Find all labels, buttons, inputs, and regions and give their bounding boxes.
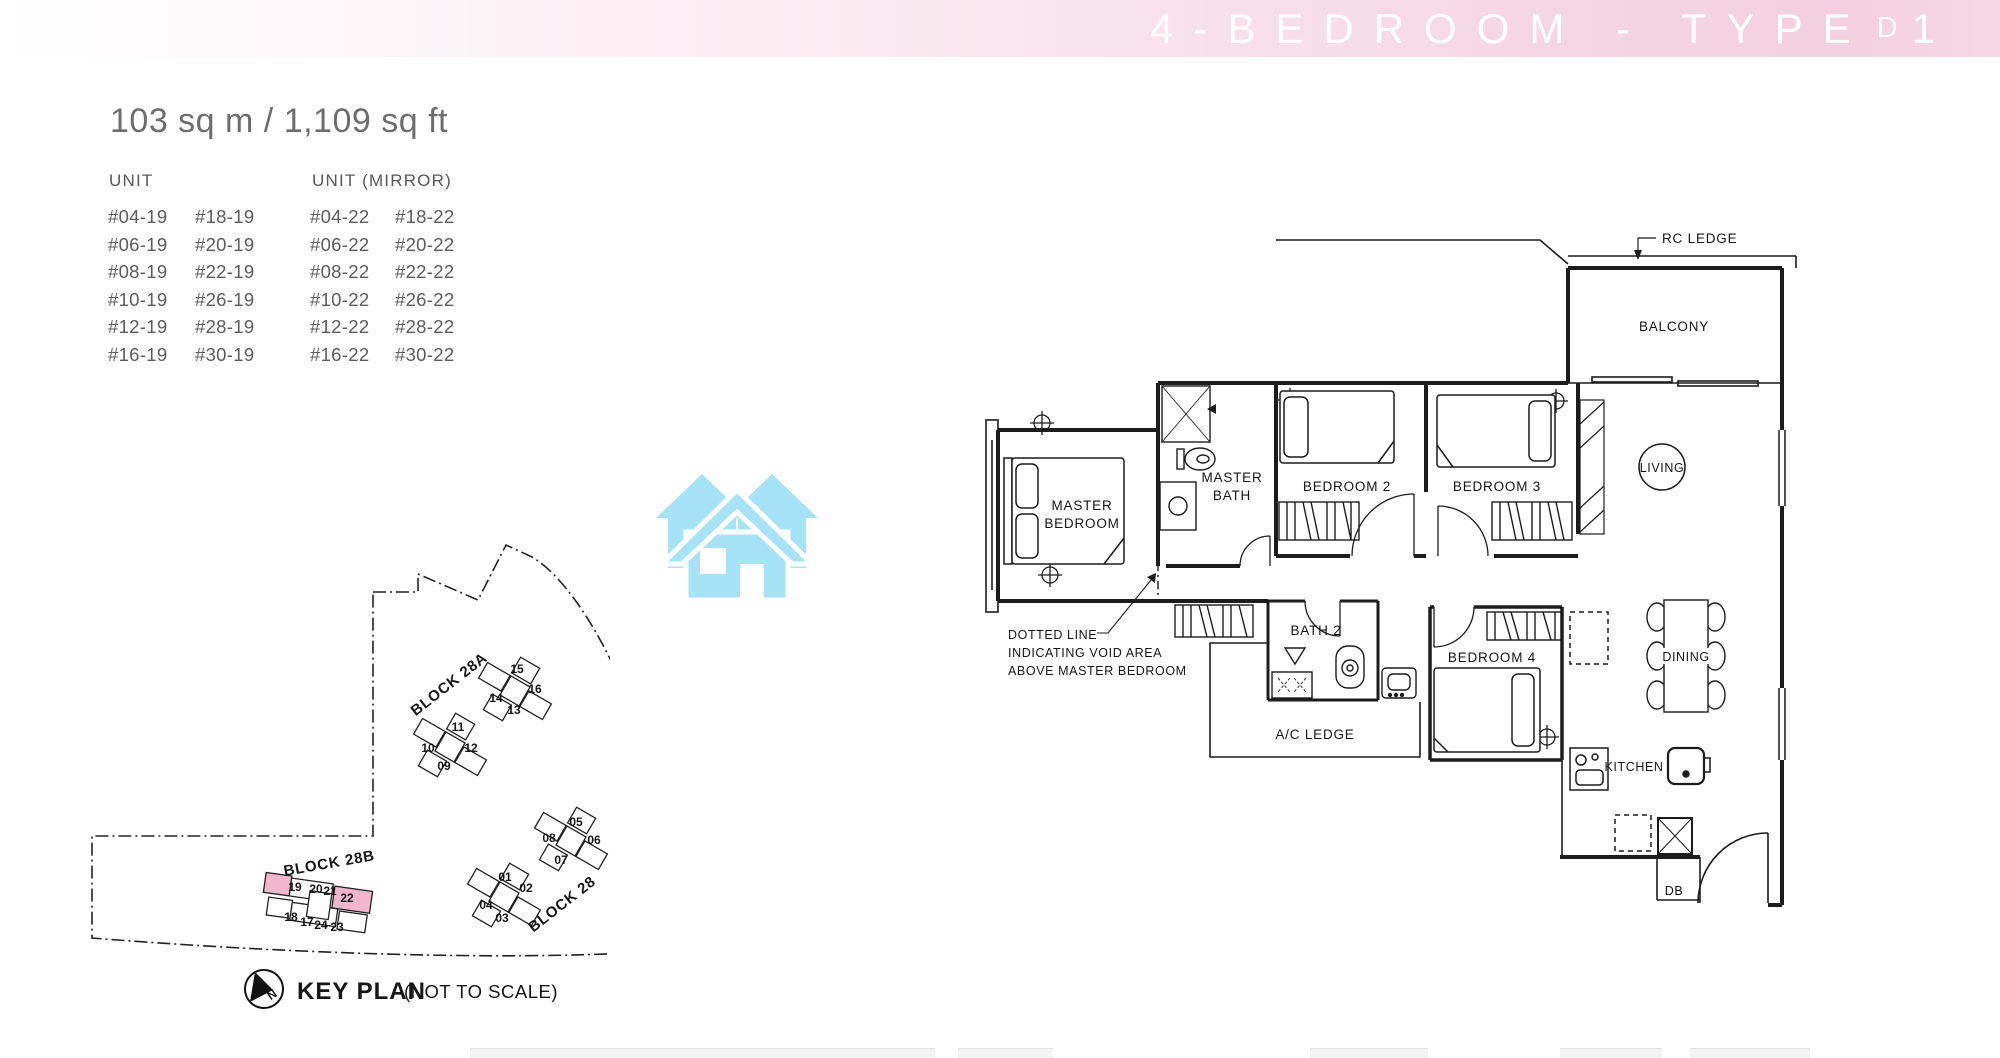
- keyplan-unit: 06: [587, 833, 601, 847]
- keyplan-unit-highlighted: 19: [288, 880, 302, 894]
- unit-cell: #18-19: [195, 206, 310, 234]
- keyplan-unit: 11: [452, 720, 465, 734]
- keyplan-unit: 16: [528, 682, 542, 696]
- master-bath-label-1: MASTER: [1201, 470, 1262, 485]
- block-28-label: BLOCK 28: [525, 873, 599, 936]
- wardrobe-bedroom4: [1487, 612, 1562, 640]
- block-28a-label: BLOCK 28A: [408, 649, 491, 719]
- key-plan: 11 10 12 09 15 14 16 13 05 08 06 07 01 0…: [80, 535, 610, 1015]
- bedroom2-label: BEDROOM 2: [1303, 479, 1391, 494]
- unit-mirror-column-header: UNIT (MIRROR): [312, 171, 452, 191]
- keyplan-unit: 12: [464, 741, 478, 755]
- void-note-line2: INDICATING VOID AREA: [1008, 646, 1162, 660]
- rc-ledge-label: RC LEDGE: [1662, 231, 1737, 246]
- keyplan-unit: 05: [569, 815, 583, 829]
- unit-cell: #08-19: [108, 261, 195, 289]
- keyplan-unit: 23: [330, 920, 344, 934]
- unit-cell: #10-19: [108, 289, 195, 317]
- wardrobe-bedroom3: [1492, 502, 1572, 540]
- dining-label: DINING: [1662, 650, 1709, 664]
- watermark-window: [700, 548, 726, 574]
- block-28b-label: BLOCK 28B: [282, 847, 376, 880]
- unit-cell: #12-19: [108, 316, 195, 344]
- header-bar: 4-BEDROOM - TYPE D 1: [0, 0, 2000, 57]
- bath2-fixtures: [1272, 646, 1416, 698]
- thin-lines: [986, 240, 1796, 903]
- master-bath-label-2: BATH: [1213, 488, 1251, 503]
- unit-column-header: UNIT: [109, 171, 153, 191]
- keyplan-unit-highlighted: 22: [340, 891, 354, 905]
- page-title-text: 4-BEDROOM - TYPE: [1150, 5, 1871, 53]
- house-watermark-icon: [652, 460, 822, 600]
- wardrobe-corridor: [1175, 605, 1253, 637]
- unit-cell: #06-19: [108, 234, 195, 262]
- keyplan-unit: 03: [495, 911, 509, 925]
- bath2-label: BATH 2: [1290, 623, 1341, 638]
- ac-ledge-label: A/C LEDGE: [1275, 727, 1354, 742]
- floor-plan: RC LEDGE BALCONY LIVING DINING KITCHEN D…: [980, 218, 1810, 918]
- unit-cell: #22-22: [395, 261, 485, 289]
- keyplan-unit: 09: [437, 759, 451, 773]
- walls: [998, 268, 1782, 905]
- tv-console: [1580, 400, 1604, 534]
- page-title: 4-BEDROOM - TYPE D 1: [1150, 0, 1955, 57]
- unit-cell: #06-22: [310, 234, 395, 262]
- page-title-type-letter: D: [1877, 12, 1912, 45]
- master-bedroom-label-1: MASTER: [1051, 498, 1112, 513]
- kitchen-label: KITCHEN: [1604, 760, 1663, 774]
- page-title-type-digit: 1: [1912, 5, 1955, 53]
- bedroom3-label: BEDROOM 3: [1453, 479, 1541, 494]
- keyplan-unit: 14: [489, 691, 503, 705]
- keyplan-unit: 01: [498, 870, 512, 884]
- bedroom4-label: BEDROOM 4: [1448, 650, 1536, 665]
- unit-cell: #18-22: [395, 206, 485, 234]
- unit-cell: #30-19: [195, 344, 310, 372]
- unit-cell: #04-22: [310, 206, 395, 234]
- unit-cell: #16-22: [310, 344, 395, 372]
- unit-cell: #16-19: [108, 344, 195, 372]
- keyplan-unit: 10: [421, 741, 435, 755]
- unit-cell: #22-19: [195, 261, 310, 289]
- unit-cell: #04-19: [108, 206, 195, 234]
- master-bedroom-label-2: BEDROOM: [1044, 516, 1119, 531]
- unit-cell: #12-22: [310, 316, 395, 344]
- balcony-label: BALCONY: [1639, 319, 1709, 334]
- keyplan-unit: 20: [309, 882, 323, 896]
- unit-cell: #20-19: [195, 234, 310, 262]
- keyplan-unit: 15: [510, 662, 524, 676]
- keyplan-unit: 08: [542, 831, 556, 845]
- unit-cell: #28-19: [195, 316, 310, 344]
- void-note-line3: ABOVE MASTER BEDROOM: [1008, 664, 1187, 678]
- unit-cell: #08-22: [310, 261, 395, 289]
- unit-table: #04-19#18-19#04-22#18-22 #06-19#20-19#06…: [108, 206, 485, 371]
- area-title: 103 sq m / 1,109 sq ft: [110, 102, 448, 141]
- unit-cell: #20-22: [395, 234, 485, 262]
- unit-cell: #26-22: [395, 289, 485, 317]
- unit-cell: #26-19: [195, 289, 310, 317]
- key-plan-subtitle: (NOT TO SCALE): [404, 981, 558, 1002]
- unit-cell: #28-22: [395, 316, 485, 344]
- master-bath-fixtures: [1160, 386, 1216, 530]
- keyplan-unit: 13: [507, 703, 521, 717]
- keyplan-unit: 02: [519, 881, 533, 895]
- db-label: DB: [1665, 884, 1684, 898]
- void-note-line1: DOTTED LINE: [1008, 628, 1097, 642]
- wardrobe-bedroom2: [1279, 502, 1359, 540]
- keyplan-unit: 04: [479, 898, 493, 912]
- keyplan-unit: 17: [300, 915, 314, 929]
- watermark-door: [740, 564, 764, 600]
- unit-cell: #30-22: [395, 344, 485, 372]
- living-label: LIVING: [1640, 461, 1685, 475]
- unit-cell: #10-22: [310, 289, 395, 317]
- keyplan-unit: 24: [314, 918, 328, 932]
- keyplan-unit: 07: [554, 853, 568, 867]
- keyplan-unit: 21: [323, 884, 337, 898]
- keyplan-unit: 18: [284, 910, 298, 924]
